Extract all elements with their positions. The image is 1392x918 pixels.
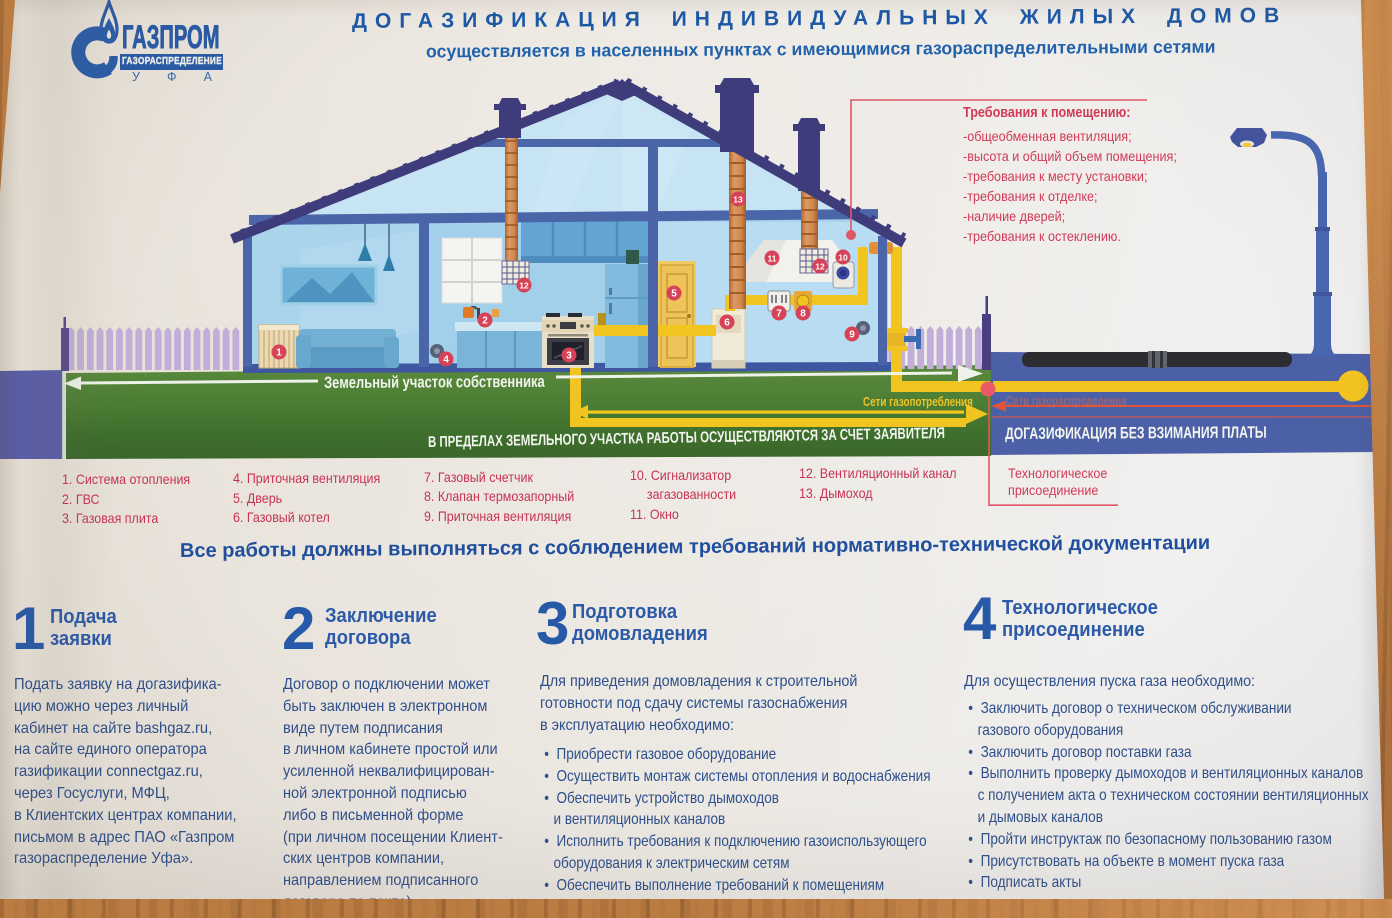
- svg-text:1: 1: [276, 348, 282, 359]
- svg-text:11: 11: [768, 254, 777, 264]
- svg-text:2: 2: [482, 316, 488, 327]
- svg-text:6: 6: [724, 318, 730, 329]
- svg-text:13: 13: [733, 195, 743, 205]
- svg-text:9: 9: [849, 330, 855, 341]
- svg-text:12: 12: [519, 281, 529, 291]
- svg-text:7: 7: [776, 309, 782, 320]
- svg-text:8: 8: [800, 309, 806, 320]
- svg-text:5: 5: [671, 289, 677, 300]
- svg-text:10: 10: [838, 253, 848, 263]
- svg-text:4: 4: [443, 355, 449, 366]
- svg-text:3: 3: [566, 351, 572, 362]
- svg-text:12: 12: [815, 262, 825, 272]
